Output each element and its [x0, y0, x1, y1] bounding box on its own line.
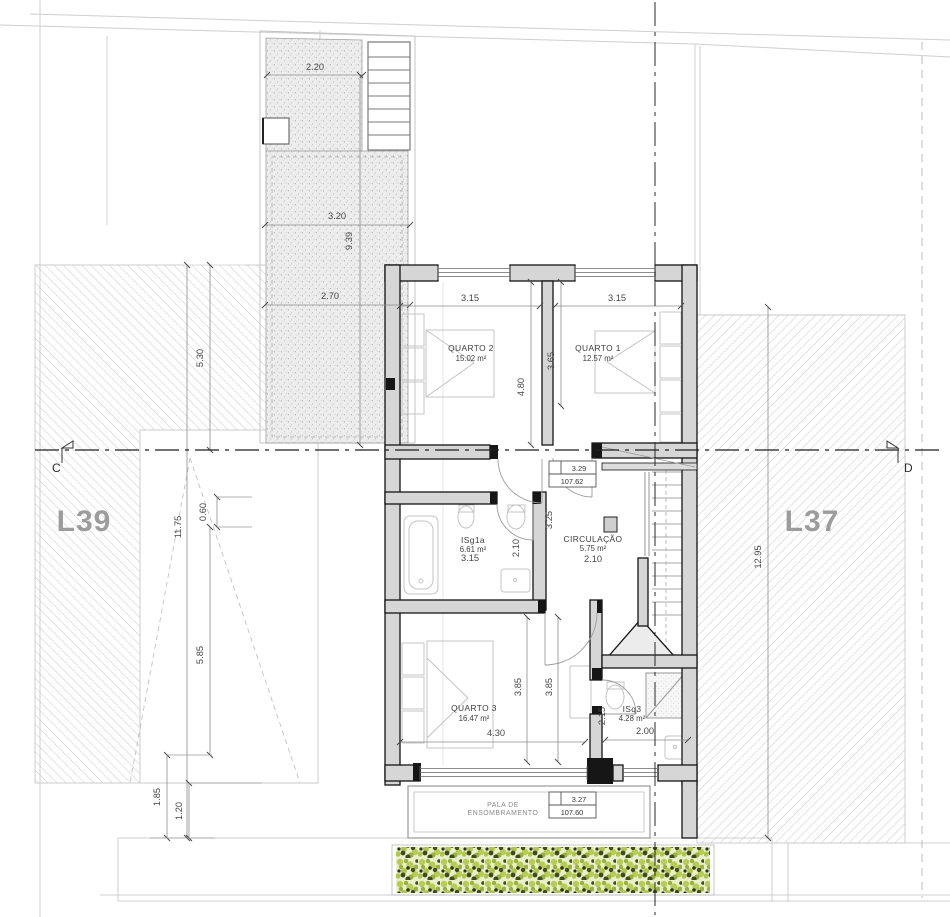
- room-name-isg1a: ISg1a: [461, 535, 485, 545]
- window-quarto2: [438, 266, 510, 280]
- section-label-c: C: [52, 461, 61, 475]
- lot-l37-hatch: [697, 315, 905, 843]
- room-area-quarto1: 12.57 m²: [583, 354, 614, 363]
- floor-plan-canvas: PALA DE ENSOMBRAMENTO: [0, 0, 950, 917]
- window-quarto3: [420, 766, 587, 780]
- shading-canopy: PALA DE ENSOMBRAMENTO: [408, 786, 650, 838]
- room-area-quarto3: 16.47 m²: [459, 714, 490, 723]
- room-name-circulacao: CIRCULAÇÃO: [564, 534, 623, 544]
- dim-quarto2-width: 3.15: [461, 293, 479, 303]
- wall-piers: [386, 378, 613, 784]
- room-area-isq3: 4.28 m²: [619, 714, 646, 723]
- dim-quarto1-width: 3.15: [608, 293, 626, 303]
- dim-quarto3-depth-b: 3.85: [544, 678, 554, 696]
- door-isg1a: [497, 504, 533, 540]
- stair-treads: [652, 472, 682, 615]
- dim-quarto2-depth: 4.80: [516, 378, 526, 396]
- dim-left-small: 0.60: [198, 503, 208, 521]
- newel-post: [604, 517, 617, 532]
- bed-quarto3: [427, 641, 493, 748]
- dim-isq3-width: 2.00: [636, 726, 654, 736]
- room-name-quarto1: QUARTO 1: [575, 343, 621, 353]
- level-marker-upper: 3.29 107.62: [549, 461, 596, 487]
- bidet-isg1a: [458, 505, 474, 528]
- dim-left-total: 11.75: [173, 516, 183, 539]
- dim-quarto3-depth-a: 3.85: [513, 678, 523, 696]
- building-walls: [385, 265, 697, 838]
- level-lower-absolute: 107.60: [561, 808, 584, 817]
- window-isq3: [623, 769, 658, 777]
- section-label-d: D: [904, 461, 913, 475]
- toilet-isg1a: [507, 505, 525, 529]
- level-marker-lower: 3.27 107.60: [549, 792, 596, 818]
- level-upper-absolute: 107.62: [561, 477, 584, 486]
- room-area-quarto2: 15.02 m²: [456, 354, 487, 363]
- sink-isg1a: [501, 569, 530, 592]
- dim-left-bottom-b: 1.20: [174, 802, 184, 820]
- dim-right-total: 12.95: [753, 545, 763, 568]
- door-quarto3: [545, 613, 597, 665]
- hedge: [392, 845, 714, 895]
- dim-isq3-depth: 2.15: [597, 707, 607, 725]
- patio-utility-box: [263, 118, 289, 144]
- room-name-isq3: ISq3: [623, 704, 642, 714]
- dim-isg1a-depth: 2.10: [511, 539, 521, 557]
- canopy-label-line2: ENSOMBRAMENTO: [468, 810, 539, 817]
- dim-left-bottom-a: 1.85: [152, 788, 162, 806]
- wardrobe-quarto3: [402, 643, 424, 743]
- bed-quarto2: [426, 330, 494, 397]
- exterior-stair-ladder: [368, 42, 410, 150]
- desk-quarto3: [570, 666, 591, 718]
- dim-patio-low: 2.70: [321, 291, 339, 301]
- room-area-circulacao: 5.75 m²: [580, 544, 607, 553]
- dim-hall-width: 2.10: [584, 554, 602, 564]
- doors: [497, 458, 636, 714]
- dim-patio-top: 2.20: [306, 62, 324, 72]
- level-upper-relative: 3.29: [572, 464, 586, 473]
- canopy-label-line1: PALA DE: [487, 802, 519, 809]
- wardrobe-quarto1: [660, 312, 681, 442]
- level-lower-relative: 3.27: [572, 795, 586, 804]
- floor-plan-drawing: PALA DE ENSOMBRAMENTO: [0, 0, 950, 917]
- dim-hall-depth: 3.25: [544, 511, 554, 529]
- dim-patio-height: 9.39: [344, 232, 354, 250]
- room-name-quarto3: QUARTO 3: [451, 703, 497, 713]
- dim-patio-mid: 3.20: [328, 211, 346, 221]
- dim-left-upper: 5.30: [195, 349, 205, 367]
- dim-quarto1-depth: 3.65: [546, 352, 556, 370]
- dim-quarto3-width: 4.30: [487, 728, 505, 738]
- window-quarto1: [575, 266, 655, 280]
- room-name-quarto2: QUARTO 2: [448, 343, 494, 353]
- lot-label-l37: L37: [785, 505, 840, 538]
- dim-left-lower: 5.85: [195, 646, 205, 664]
- bathtub-isg1a: [404, 516, 438, 594]
- lot-label-l39: L39: [57, 505, 112, 538]
- shower-isq3: [646, 673, 685, 718]
- dim-isg1a-width: 3.15: [461, 553, 479, 563]
